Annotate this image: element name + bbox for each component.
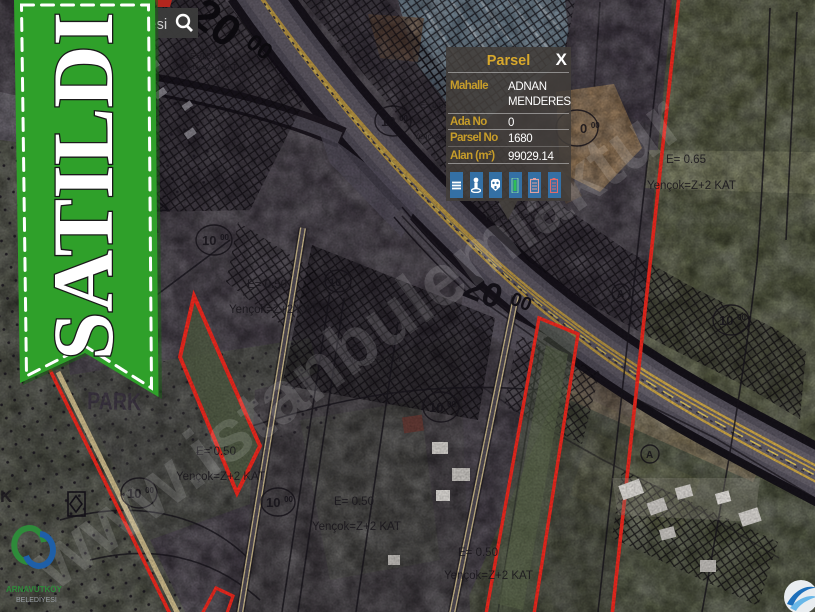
svg-text:BELEDİYESİ: BELEDİYESİ xyxy=(16,595,57,604)
svg-text:SATILDI: SATILDI xyxy=(35,12,131,360)
svg-text:ARNAVUTKÖY: ARNAVUTKÖY xyxy=(6,585,63,594)
